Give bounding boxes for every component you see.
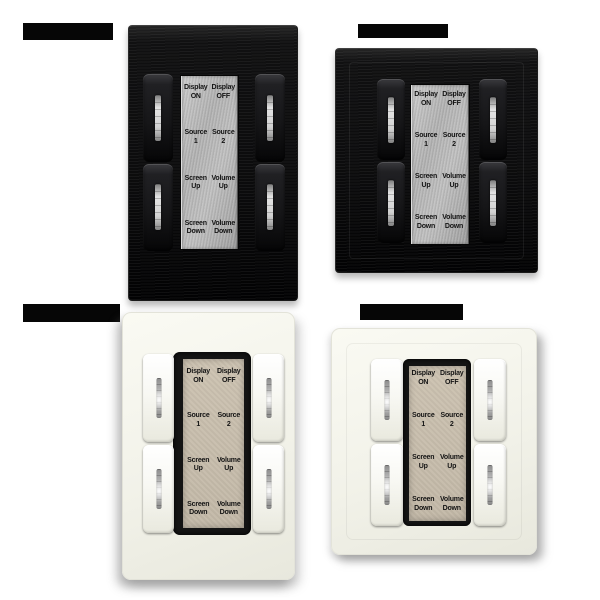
label-plate: Display ONDisplay OFF Source 1Source 2 S…	[411, 85, 469, 244]
label-volume-down: Volume Down	[214, 501, 245, 518]
label-display-on: Display ON	[182, 84, 210, 101]
label-screen-up: Screen Up	[182, 175, 210, 192]
led-indicator	[155, 184, 161, 230]
label-screen-down: Screen Down	[182, 220, 210, 237]
label-volume-down: Volume Down	[210, 220, 238, 237]
label-plate: Display ONDisplay OFF Source 1Source 2 S…	[183, 359, 244, 528]
label-screen-down: Screen Down	[409, 496, 438, 513]
white-eu-square-keypad: Display ONDisplay OFF Source 1Source 2 S…	[331, 328, 537, 555]
label-source-2: Source 2	[438, 412, 467, 429]
label-display-off: Display OFF	[440, 91, 468, 108]
redacted-label-bottom-left	[23, 304, 120, 322]
label-display-on: Display ON	[412, 91, 440, 108]
label-display-on: Display ON	[183, 368, 214, 385]
keypad-button-bottom-right[interactable]	[253, 445, 284, 533]
keypad-button-top-right[interactable]	[255, 74, 285, 162]
led-indicator	[385, 465, 390, 505]
redacted-label-top-right	[358, 24, 448, 38]
keypad-button-top-left[interactable]	[143, 354, 174, 442]
label-display-on: Display ON	[409, 370, 438, 387]
keypad-button-bottom-left[interactable]	[371, 444, 403, 526]
label-volume-up: Volume Up	[438, 454, 467, 471]
label-source-2: Source 2	[214, 412, 245, 429]
label-source-1: Source 1	[412, 132, 440, 149]
keypad-button-top-right[interactable]	[479, 79, 507, 160]
label-source-2: Source 2	[440, 132, 468, 149]
keypad-button-bottom-left[interactable]	[143, 164, 173, 252]
keypad-button-bottom-left[interactable]	[377, 162, 405, 243]
label-display-off: Display OFF	[210, 84, 238, 101]
keypad-button-top-right[interactable]	[253, 354, 284, 442]
label-display-off: Display OFF	[438, 370, 467, 387]
label-plate: Display ONDisplay OFF Source 1Source 2 S…	[409, 366, 466, 521]
label-volume-down: Volume Down	[440, 214, 468, 231]
label-display-off: Display OFF	[214, 368, 245, 385]
label-source-1: Source 1	[409, 412, 438, 429]
led-indicator	[155, 95, 161, 141]
led-indicator	[388, 180, 394, 226]
black-us-portrait-keypad: Display ONDisplay OFF Source 1Source 2 S…	[128, 25, 298, 301]
redacted-label-bottom-right	[360, 304, 463, 320]
led-indicator	[385, 380, 390, 420]
label-source-1: Source 1	[182, 129, 210, 146]
led-indicator	[266, 378, 271, 418]
keypad-button-bottom-left[interactable]	[143, 445, 174, 533]
led-indicator	[388, 97, 394, 143]
led-indicator	[490, 180, 496, 226]
keypad-button-top-left[interactable]	[143, 74, 173, 162]
keypad-button-bottom-right[interactable]	[255, 164, 285, 252]
label-volume-up: Volume Up	[210, 175, 238, 192]
black-eu-square-keypad: Display ONDisplay OFF Source 1Source 2 S…	[335, 48, 538, 273]
led-indicator	[267, 184, 273, 230]
keypad-button-bottom-right[interactable]	[474, 444, 506, 526]
label-screen-down: Screen Down	[183, 501, 214, 518]
led-indicator	[156, 378, 161, 418]
keypad-product-photo: Display ONDisplay OFF Source 1Source 2 S…	[0, 0, 600, 600]
label-screen-up: Screen Up	[409, 454, 438, 471]
led-indicator	[488, 465, 493, 505]
led-indicator	[490, 97, 496, 143]
keypad-button-top-left[interactable]	[371, 359, 403, 441]
led-indicator	[156, 469, 161, 509]
label-source-2: Source 2	[210, 129, 238, 146]
redacted-label-top-left	[23, 23, 113, 40]
label-screen-up: Screen Up	[183, 457, 214, 474]
keypad-button-top-left[interactable]	[377, 79, 405, 160]
led-indicator	[488, 380, 493, 420]
led-indicator	[266, 469, 271, 509]
label-screen-up: Screen Up	[412, 173, 440, 190]
label-source-1: Source 1	[183, 412, 214, 429]
keypad-button-bottom-right[interactable]	[479, 162, 507, 243]
label-volume-down: Volume Down	[438, 496, 467, 513]
label-volume-up: Volume Up	[214, 457, 245, 474]
keypad-button-top-right[interactable]	[474, 359, 506, 441]
label-screen-down: Screen Down	[412, 214, 440, 231]
label-plate: Display ONDisplay OFF Source 1Source 2 S…	[181, 76, 238, 249]
led-indicator	[267, 95, 273, 141]
white-us-portrait-keypad: Display ONDisplay OFF Source 1Source 2 S…	[122, 312, 295, 580]
label-volume-up: Volume Up	[440, 173, 468, 190]
